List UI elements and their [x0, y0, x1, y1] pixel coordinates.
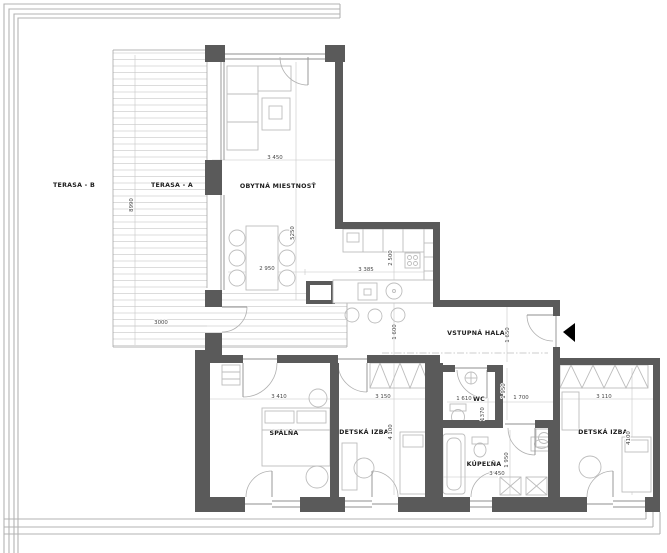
kids-room2-furniture: [562, 392, 651, 492]
room-label-spalna: SPÁLŇA: [269, 428, 298, 437]
dim-spalna-width: 3 410: [271, 394, 287, 400]
room-label-detska-izba-1: DETSKÁ IZBA: [339, 427, 389, 436]
dim-wc-width: 1 610: [456, 396, 472, 402]
dim-detska2-depth: 4100: [626, 431, 632, 445]
dim-kupelna-width: 3 450: [489, 471, 505, 477]
dim-living-width: 3 450: [267, 155, 283, 161]
room-label-wc: WC: [473, 396, 485, 403]
room-label-vstupna-hala: VSTUPNÁ HALA: [447, 328, 505, 337]
dining-set: [229, 226, 295, 290]
dim-dining-width: 2 950: [259, 266, 275, 272]
wardrobe-right-wing: [560, 365, 648, 388]
dim-terrace-width: 3000: [154, 320, 168, 326]
floor-plan: TERASA - B TERASA - A OBYTNÁ MIESTNOSŤ V…: [0, 0, 667, 553]
kids-room1-furniture: [342, 432, 426, 494]
dim-entry-width: 1 650: [505, 327, 511, 343]
dim-terrace-depth: 8990: [129, 198, 135, 212]
dim-detska1-width: 3 150: [375, 394, 391, 400]
dim-living-depth: 5250: [290, 226, 296, 240]
hall-wardrobe: [222, 363, 433, 388]
dim-detska2-width: 3 110: [596, 394, 612, 400]
room-label-terasa-b: TERASA - B: [53, 182, 95, 189]
room-label-kupelna: KÚPEĽŇA: [467, 459, 502, 468]
dim-wc-depth: 1370: [480, 407, 486, 421]
room-label-obytna-miestnost: OBYTNÁ MIESTNOSŤ: [240, 181, 317, 190]
kitchen-island: [308, 280, 438, 303]
dim-hall-closet-width: 1 700: [513, 395, 529, 401]
dim-wc-zone-depth: 1 950: [501, 383, 507, 399]
entrance-arrow-icon: [563, 323, 575, 342]
room-label-terasa-a: TERASA - A: [151, 182, 193, 189]
floor-plan-canvas: TERASA - B TERASA - A OBYTNÁ MIESTNOSŤ V…: [0, 0, 667, 553]
dim-detska1-depth: 4 100: [388, 424, 394, 440]
bar-stools: [345, 308, 405, 323]
dim-kupelna-depth: 1 950: [504, 452, 510, 468]
dim-passage-width: 1 600: [392, 324, 398, 340]
coffee-table: [262, 98, 290, 130]
dim-kitchen-width: 3 385: [358, 267, 373, 273]
room-label-detska-izba-2: DETSKÁ IZBA: [578, 427, 628, 436]
dim-kitchen-depth: 2 500: [388, 250, 394, 266]
